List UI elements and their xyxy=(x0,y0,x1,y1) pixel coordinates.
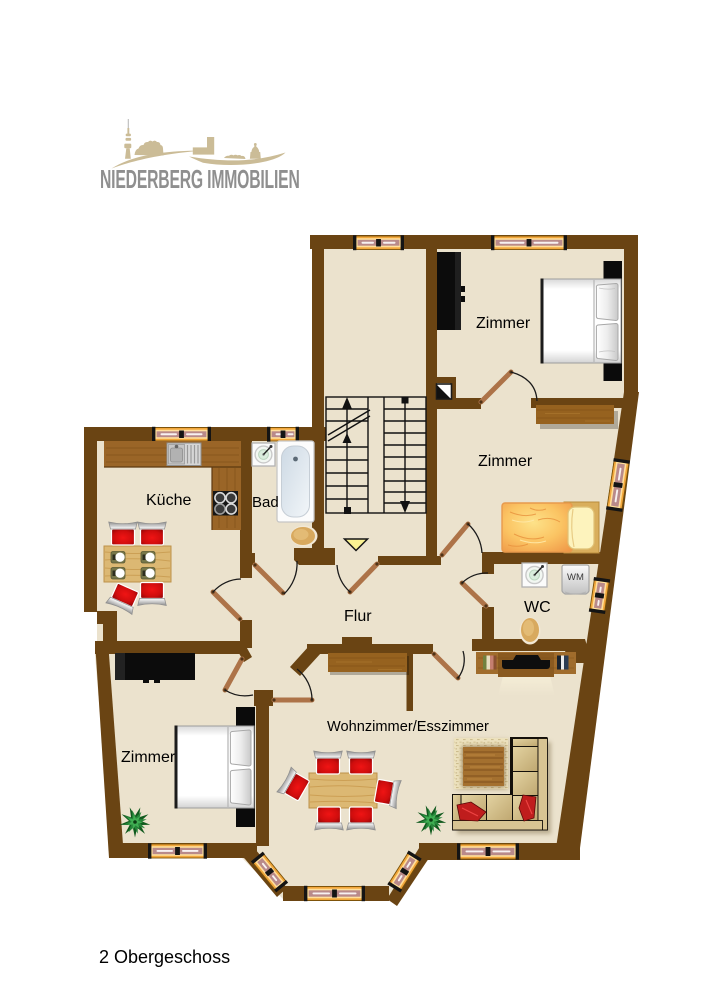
svg-text:Küche: Küche xyxy=(146,492,191,509)
svg-text:Flur: Flur xyxy=(344,608,372,625)
svg-text:2 Obergeschoss: 2 Obergeschoss xyxy=(99,947,230,967)
svg-text:WC: WC xyxy=(524,599,551,616)
svg-text:Zimmer: Zimmer xyxy=(121,749,176,766)
svg-text:Zimmer: Zimmer xyxy=(476,315,531,332)
svg-text:NIEDERBERG IMMOBILIEN: NIEDERBERG IMMOBILIEN xyxy=(100,166,300,194)
svg-text:Wohnzimmer/Esszimmer: Wohnzimmer/Esszimmer xyxy=(327,719,489,735)
svg-text:Zimmer: Zimmer xyxy=(478,453,533,470)
svg-text:Bad: Bad xyxy=(252,494,279,511)
svg-text:WM: WM xyxy=(567,572,584,583)
